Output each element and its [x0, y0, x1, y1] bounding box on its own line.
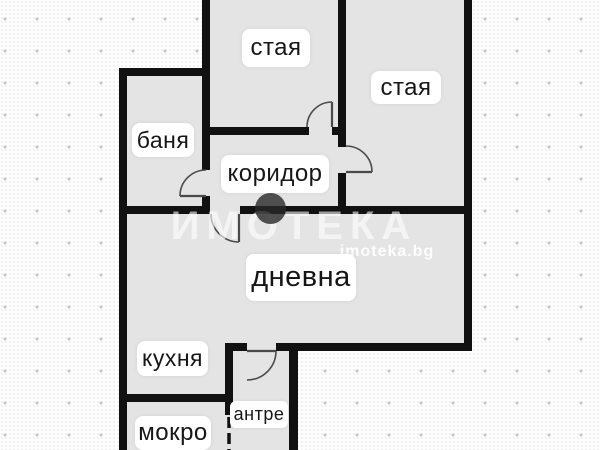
room-label-living-room: дневна	[246, 254, 356, 301]
wall-bathroom-top	[119, 68, 210, 76]
room-label-corridor: коридор	[221, 155, 329, 193]
wall-rooms-divider-upper	[338, 0, 346, 147]
wall-right-outer	[464, 0, 472, 351]
room-label-room-right: стая	[371, 71, 441, 104]
watermark-brand-text: ИМОТЕКА	[154, 204, 434, 248]
floor-plan-image: ИМОТЕКА imoteka.bg стая стая баня коридо…	[0, 0, 600, 450]
wall-entry-right-outer	[289, 343, 298, 450]
room-label-kitchen: кухня	[137, 341, 208, 376]
wall-bathroom-right-upper	[202, 0, 210, 170]
wall-living-bottom-right	[276, 343, 472, 351]
room-label-utility-room: мокро	[135, 416, 211, 450]
wall-kitchen-utility-divider	[119, 394, 233, 402]
room-label-bathroom: баня	[132, 123, 194, 157]
watermark-logo-circle-icon	[255, 193, 286, 224]
wall-left-outer	[119, 68, 127, 450]
wall-toproom-bottom-left	[202, 127, 309, 135]
room-label-entry-hall: антре	[230, 401, 288, 428]
fill-entry-hall	[229, 347, 294, 450]
room-label-room-top: стая	[242, 29, 310, 67]
